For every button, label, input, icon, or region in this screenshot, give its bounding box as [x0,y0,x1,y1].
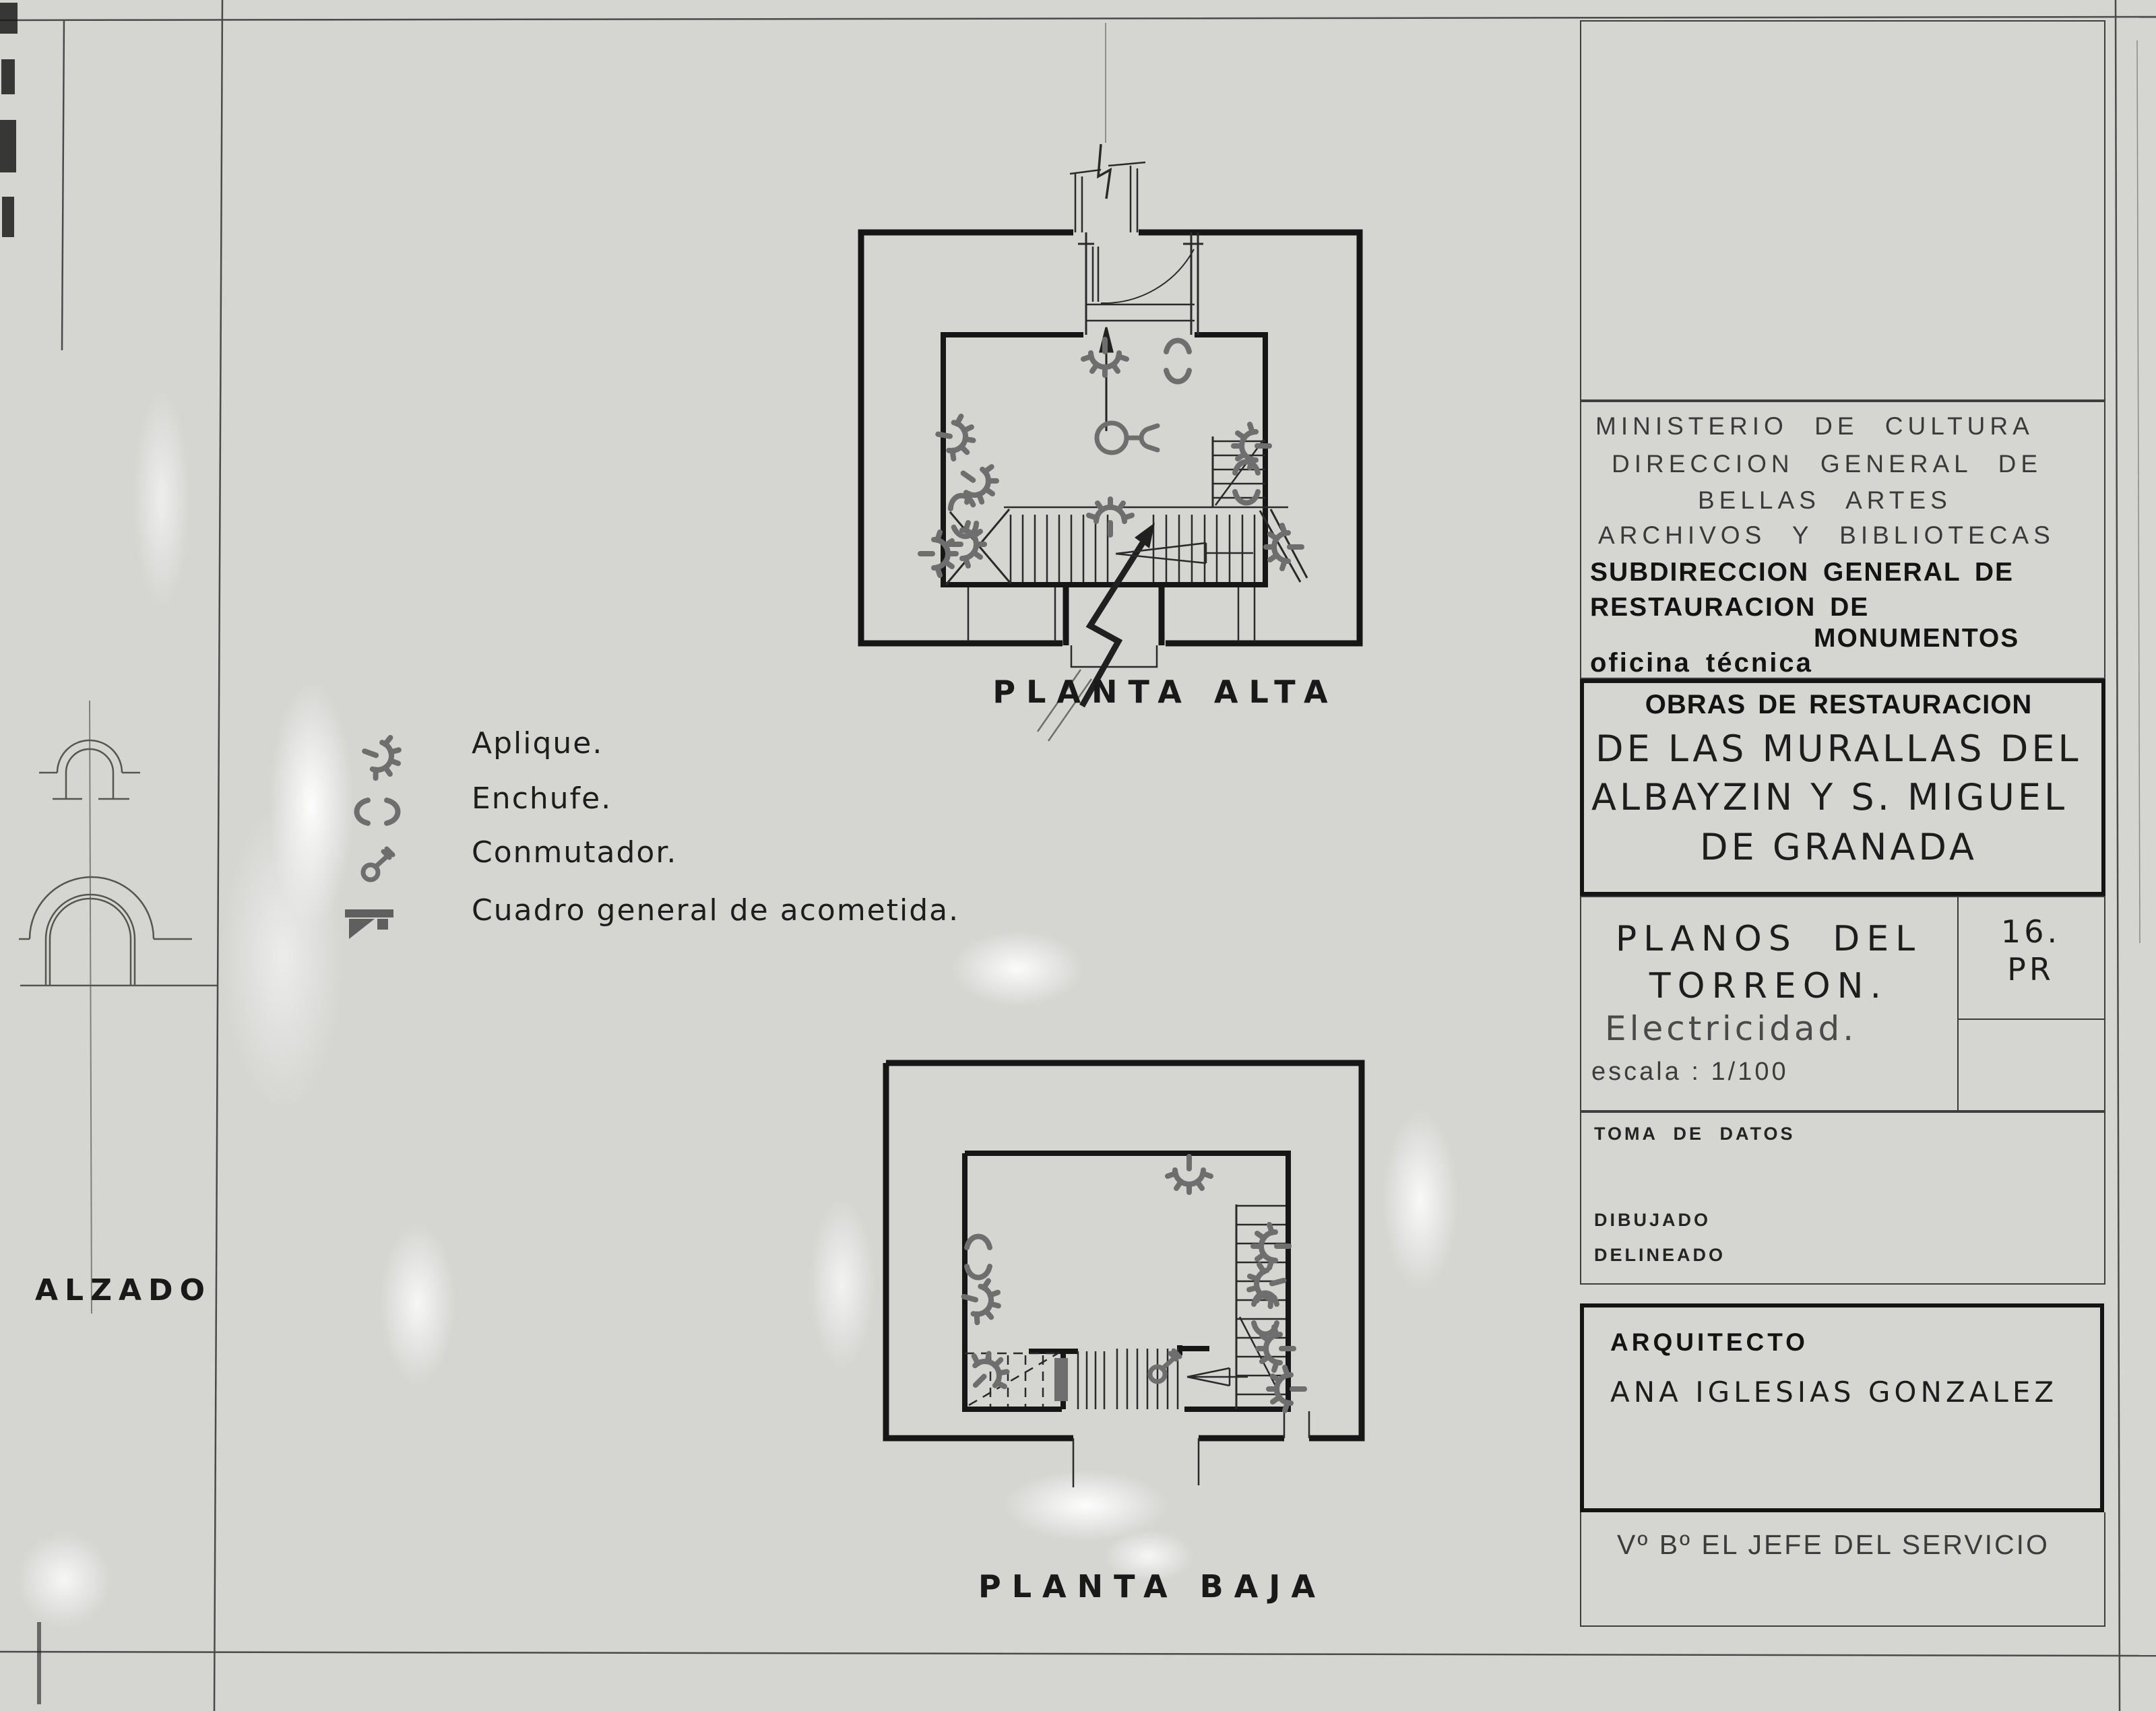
legend-label-conmutador: Conmutador. [472,835,677,870]
planta-alta-label: PLANTA ALTA [990,674,1341,710]
blueprint-sheet: MINISTERIO DE CULTURA DIRECCION GENERAL … [0,0,2156,1711]
project-title: OBRAS DE RESTAURACION [1580,690,2097,720]
aplique-icon [1253,1225,1289,1268]
field-delineado: DELINEADO [1594,1245,1725,1266]
sheet-number-series: PR [1957,951,2104,988]
ministry-line: ARCHIVOS Y BIBLIOTECAS [1598,521,2055,550]
enchufe-icon [1235,462,1258,503]
drawing-title-line: PLANOS DEL [1580,919,1957,959]
drawing-title-line: TORREON. [1580,966,1957,1006]
field-toma-de-datos: TOMA DE DATOS [1594,1124,1796,1144]
aplique-icon [1266,525,1302,569]
alzado-label: ALZADO [35,1273,212,1308]
sheet-number: 16. [1957,913,2104,950]
enchufe-icon [967,1237,990,1278]
aplique-icon [1168,1157,1211,1192]
legend-symbols [345,731,406,939]
architect-label: ARQUITECTO [1610,1328,1808,1357]
cuadro-general-icon [345,909,393,939]
scan-edge-marks [0,3,41,1704]
drawing-subject: Electricidad. [1605,1009,1857,1048]
subdirection-line: MONUMENTOS [1814,624,2019,653]
field-dibujado: DIBUJADO [1594,1210,1711,1231]
elevation-alzado-drawing [19,701,217,1314]
subdirection-line: RESTAURACION DE [1590,593,1869,622]
architect-name: ANA IGLESIAS GONZALEZ [1610,1376,2058,1409]
subdirection-line: SUBDIRECCION GENERAL DE [1590,558,2014,587]
legend-label-enchufe: Enchufe. [472,781,612,816]
sheet-number-cell-divider [1957,1019,2104,1020]
title-block-empty-box [1580,20,2105,401]
ministry-line: MINISTERIO DE CULTURA [1595,412,2034,441]
enchufe-icon [357,800,398,823]
scale-label: escala : 1/100 [1591,1058,1789,1087]
project-line: DE GRANADA [1580,826,2097,868]
planta-baja-label: PLANTA BAJA [977,1568,1327,1605]
cuadro-general-icon [1054,1358,1068,1401]
aplique-icon [1244,1260,1290,1311]
legend-label-aplique: Aplique. [472,726,603,761]
planta-baja-drawing [886,1063,1362,1487]
planta-alta-symbols [920,340,1302,575]
conmutador-icon [1150,1351,1180,1382]
enchufe-icon [1166,341,1189,382]
planta-baja-symbols [958,1157,1304,1411]
aplique-icon [357,731,406,783]
project-line: ALBAYZIN Y S. MIGUEL [1591,776,2068,818]
aplique-icon [1083,340,1127,375]
approval-label: Vº Bº EL JEFE DEL SERVICIO [1617,1529,2050,1561]
planta-alta-drawing [861,23,1360,741]
conmutador-icon [363,849,393,880]
legend-label-cuadro-general: Cuadro general de acometida. [472,893,959,928]
aplique-icon [920,532,956,575]
aplique-icon [951,455,1005,511]
office-label: oficina técnica [1590,648,1813,678]
ministry-line: DIRECCION GENERAL DE [1612,450,2042,478]
project-line: DE LAS MURALLAS DEL [1595,728,2082,770]
ministry-line: BELLAS ARTES [1698,486,1952,515]
